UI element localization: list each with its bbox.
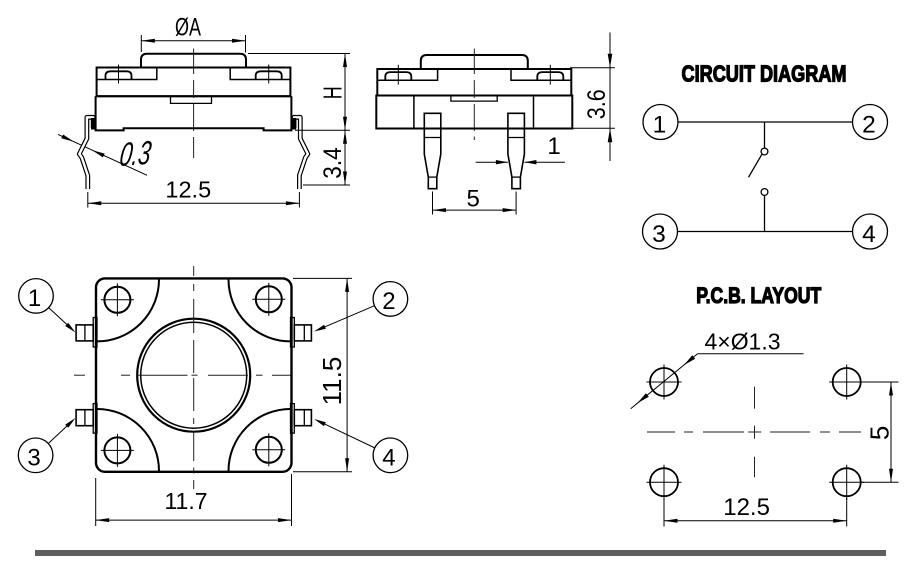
svg-text:ØA: ØA: [175, 13, 201, 41]
svg-text:3: 3: [652, 221, 666, 248]
svg-text:4: 4: [862, 221, 876, 248]
svg-text:H: H: [318, 86, 348, 99]
svg-text:3.4: 3.4: [319, 147, 347, 179]
svg-text:0.3: 0.3: [117, 135, 153, 174]
svg-text:P.C.B. LAYOUT: P.C.B. LAYOUT: [696, 283, 821, 308]
svg-text:11.7: 11.7: [164, 488, 207, 514]
svg-text:1: 1: [653, 111, 667, 138]
svg-text:CIRCUIT DIAGRAM: CIRCUIT DIAGRAM: [682, 60, 847, 86]
svg-text:5: 5: [864, 426, 894, 440]
svg-text:2: 2: [382, 288, 395, 315]
svg-text:1: 1: [547, 133, 560, 160]
svg-text:3: 3: [27, 444, 40, 471]
svg-text:12.5: 12.5: [723, 494, 770, 521]
svg-text:4: 4: [382, 444, 395, 471]
svg-text:3.6: 3.6: [583, 89, 611, 119]
svg-text:2: 2: [862, 111, 876, 138]
svg-text:5: 5: [467, 186, 480, 213]
svg-text:4×Ø1.3: 4×Ø1.3: [705, 329, 781, 355]
svg-text:12.5: 12.5: [165, 177, 211, 203]
svg-text:11.5: 11.5: [317, 357, 347, 406]
svg-text:1: 1: [28, 285, 41, 312]
